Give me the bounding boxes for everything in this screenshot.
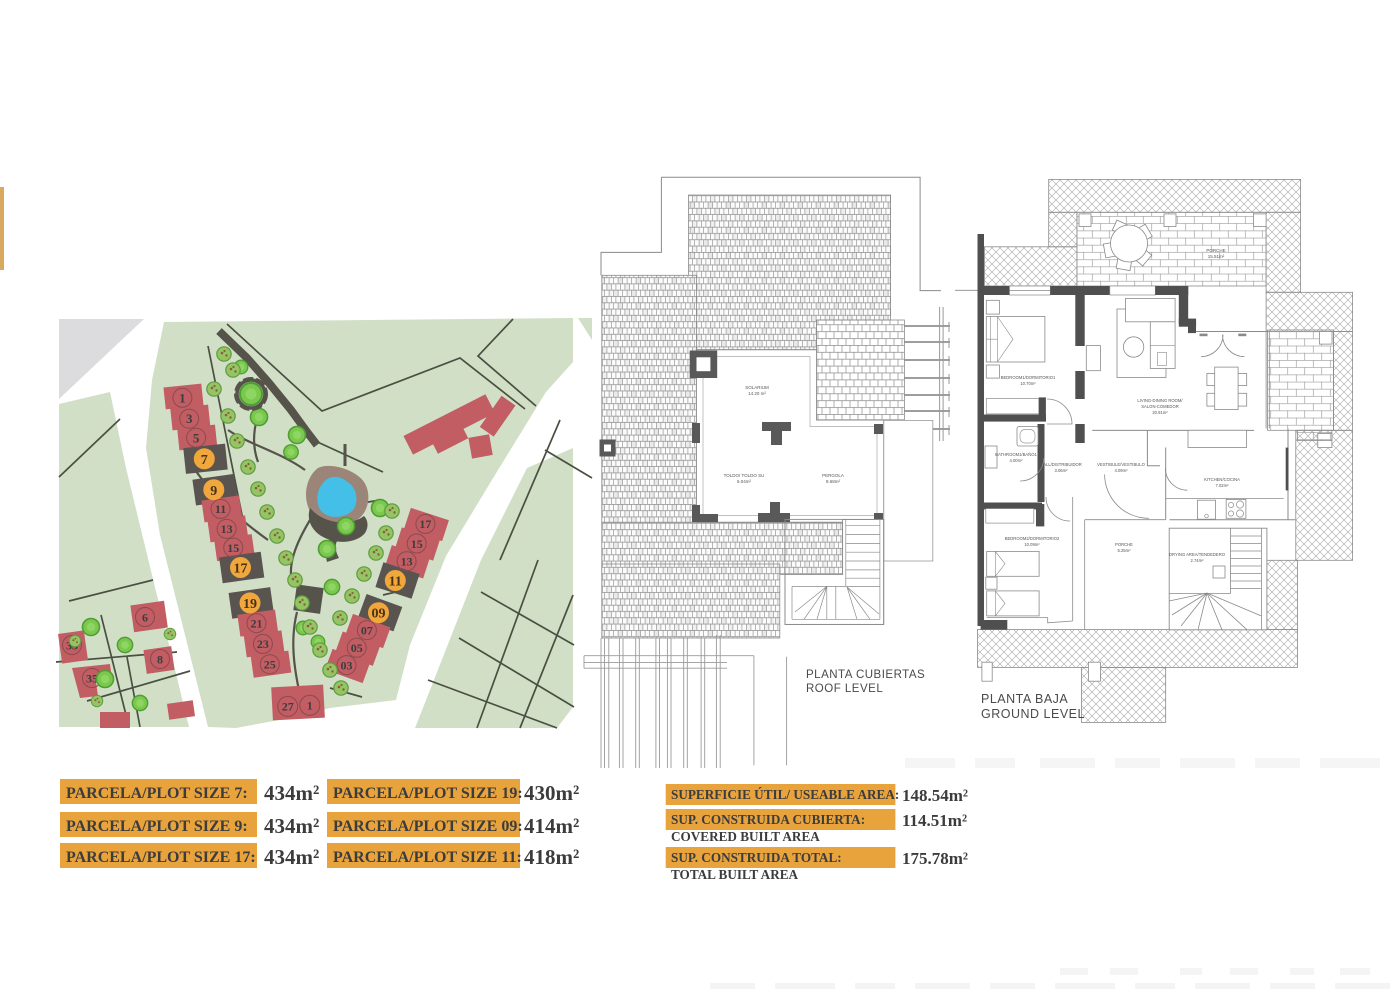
svg-text:SOLARIUM: SOLARIUM <box>745 385 769 390</box>
svg-text:07: 07 <box>361 623 373 637</box>
svg-text:SUPERFICIE ÚTIL/ USEABLE AREA:: SUPERFICIE ÚTIL/ USEABLE AREA: <box>671 787 899 802</box>
svg-text:SUP. CONSTRUIDA CUBIERTA:: SUP. CONSTRUIDA CUBIERTA: <box>671 812 865 827</box>
svg-text:27: 27 <box>282 700 294 714</box>
svg-text:10.70m²: 10.70m² <box>1020 381 1036 386</box>
svg-text:21: 21 <box>251 616 263 630</box>
svg-text:5.25m²: 5.25m² <box>1117 548 1131 553</box>
svg-text:25: 25 <box>264 658 276 672</box>
svg-text:VESTIBULE/VESTIBULO: VESTIBULE/VESTIBULO <box>1097 462 1145 467</box>
svg-text:PARCELA/PLOT SIZE 19:: PARCELA/PLOT SIZE 19: <box>333 785 523 802</box>
svg-text:15.51m²: 15.51m² <box>1208 254 1225 259</box>
svg-text:PLANTA CUBIERTAS: PLANTA CUBIERTAS <box>806 669 925 681</box>
svg-text:10.09m²: 10.09m² <box>1024 542 1040 547</box>
svg-text:KITCHEN/COCINA: KITCHEN/COCINA <box>1204 477 1240 482</box>
svg-text:BATHROOM1/BAÑO1: BATHROOM1/BAÑO1 <box>995 452 1037 457</box>
svg-text:1: 1 <box>179 390 186 405</box>
svg-text:5: 5 <box>193 430 200 445</box>
svg-text:17: 17 <box>419 517 431 531</box>
svg-text:15: 15 <box>227 541 239 555</box>
svg-text:GROUND LEVEL: GROUND LEVEL <box>981 707 1085 721</box>
svg-text:PORCHE: PORCHE <box>1115 542 1133 547</box>
svg-text:COVERED BUILT AREA: COVERED BUILT AREA <box>671 829 820 844</box>
svg-text:PARCELA/PLOT SIZE 17:: PARCELA/PLOT SIZE 17: <box>66 849 256 866</box>
svg-text:2.74m²: 2.74m² <box>1190 558 1204 563</box>
svg-text:13: 13 <box>221 522 233 536</box>
svg-text:PORCHE: PORCHE <box>1206 248 1225 253</box>
svg-text:PARCELA/PLOT SIZE 11:: PARCELA/PLOT SIZE 11: <box>333 849 522 866</box>
svg-text:09: 09 <box>372 607 386 622</box>
svg-text:SALON-COMEDOR: SALON-COMEDOR <box>1141 404 1178 409</box>
svg-text:TOTAL BUILT AREA: TOTAL BUILT AREA <box>671 867 799 882</box>
svg-text:4.00m²: 4.00m² <box>1009 458 1023 463</box>
svg-text:6: 6 <box>142 610 148 624</box>
svg-text:11: 11 <box>389 575 402 590</box>
svg-text:PLANTA BAJA: PLANTA BAJA <box>981 692 1068 706</box>
svg-text:148.54m²: 148.54m² <box>902 786 968 805</box>
svg-text:DRYING AREA/TENDEDERO: DRYING AREA/TENDEDERO <box>1169 552 1226 557</box>
svg-text:434m²: 434m² <box>264 814 319 838</box>
svg-text:BEDROOM1/DORMITORIO1: BEDROOM1/DORMITORIO1 <box>1001 375 1056 380</box>
svg-text:175.78m²: 175.78m² <box>902 849 968 868</box>
svg-text:414m²: 414m² <box>524 814 579 838</box>
svg-text:ROOF LEVEL: ROOF LEVEL <box>806 683 883 695</box>
svg-text:13: 13 <box>401 555 413 569</box>
svg-text:20.91m²: 20.91m² <box>1152 410 1168 415</box>
svg-text:BEDROOM2/DORMITORIO2: BEDROOM2/DORMITORIO2 <box>1005 536 1060 541</box>
svg-text:9: 9 <box>210 484 217 499</box>
svg-text:6.04m²: 6.04m² <box>737 479 752 484</box>
svg-text:3: 3 <box>186 411 193 426</box>
svg-text:7.02m²: 7.02m² <box>1215 483 1229 488</box>
svg-text:14.20 m²: 14.20 m² <box>748 391 766 396</box>
svg-text:114.51m²: 114.51m² <box>902 811 967 830</box>
svg-text:03: 03 <box>341 658 353 672</box>
svg-text:PERGOLA: PERGOLA <box>822 473 844 478</box>
svg-text:LIVING-DINING ROOM/: LIVING-DINING ROOM/ <box>1137 398 1183 403</box>
svg-text:8.68m²: 8.68m² <box>826 479 841 484</box>
svg-text:418m²: 418m² <box>524 845 579 869</box>
svg-text:TOLDO/ TOLDO SU: TOLDO/ TOLDO SU <box>724 473 765 478</box>
svg-text:17: 17 <box>234 562 248 577</box>
svg-text:7: 7 <box>201 453 208 468</box>
svg-text:HALL/DISTRIBUIDOR: HALL/DISTRIBUIDOR <box>1040 462 1082 467</box>
svg-text:430m²: 430m² <box>524 781 579 805</box>
svg-text:15: 15 <box>411 537 423 551</box>
svg-text:11: 11 <box>215 502 226 516</box>
svg-text:23: 23 <box>257 637 269 651</box>
svg-text:PARCELA/PLOT SIZE 7:: PARCELA/PLOT SIZE 7: <box>66 785 248 802</box>
svg-text:434m²: 434m² <box>264 781 319 805</box>
svg-text:05: 05 <box>351 641 363 655</box>
svg-text:PARCELA/PLOT SIZE 9:: PARCELA/PLOT SIZE 9: <box>66 818 248 835</box>
svg-text:434m²: 434m² <box>264 845 319 869</box>
svg-text:8: 8 <box>157 652 163 666</box>
svg-text:PARCELA/PLOT SIZE 09:: PARCELA/PLOT SIZE 09: <box>333 818 523 835</box>
svg-text:4.09m²: 4.09m² <box>1114 468 1128 473</box>
svg-text:3.06m²: 3.06m² <box>1054 468 1068 473</box>
svg-text:SUP. CONSTRUIDA TOTAL:: SUP. CONSTRUIDA TOTAL: <box>671 850 842 865</box>
svg-text:1: 1 <box>307 699 313 713</box>
svg-text:19: 19 <box>243 597 257 612</box>
